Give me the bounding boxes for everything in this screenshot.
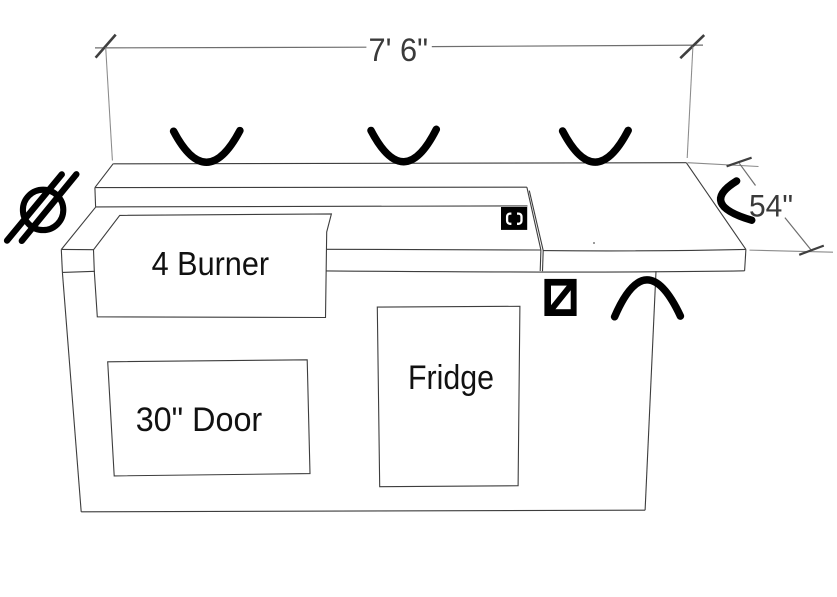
- svg-text:4 Burner: 4 Burner: [152, 246, 270, 283]
- svg-text:Fridge: Fridge: [408, 359, 494, 397]
- svg-text:7' 6": 7' 6": [369, 32, 429, 68]
- svg-text:54": 54": [749, 187, 793, 223]
- svg-text:30" Door: 30" Door: [136, 401, 263, 439]
